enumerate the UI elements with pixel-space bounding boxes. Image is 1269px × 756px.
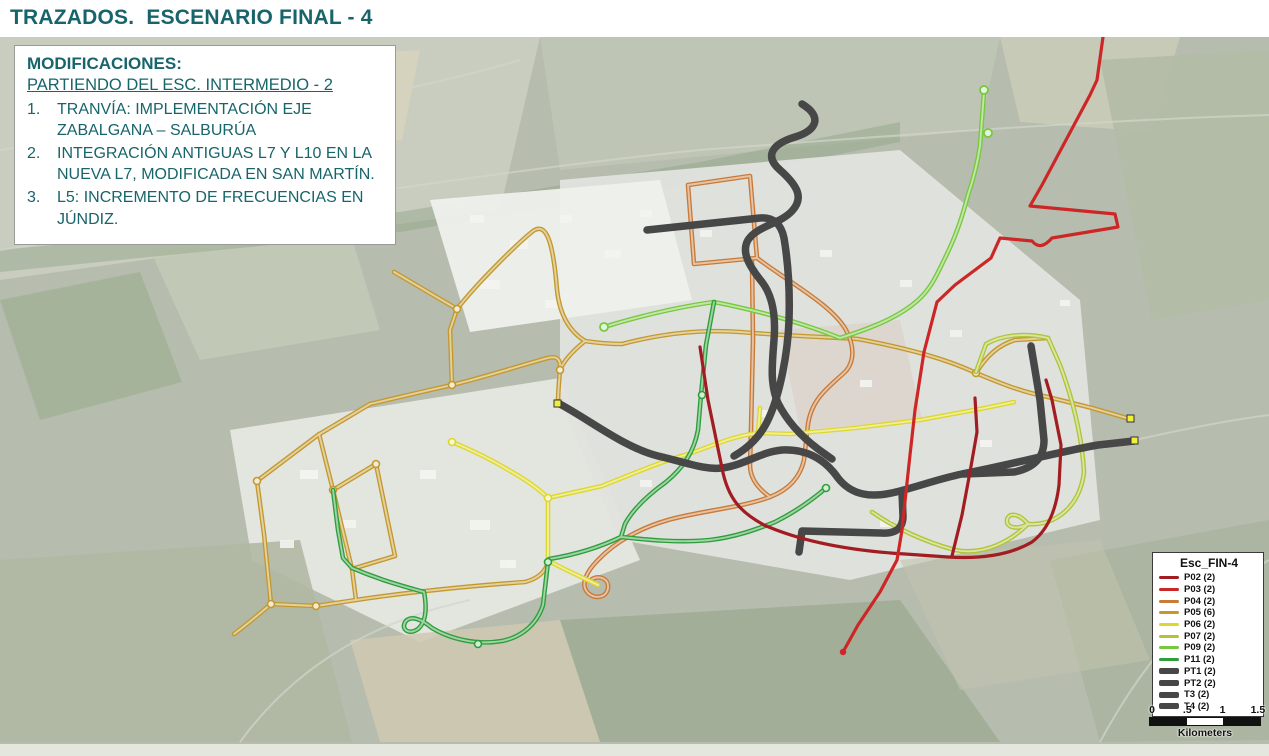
modification-text: L5: INCREMENTO DE FRECUENCIAS EN JÚNDIZ. bbox=[57, 187, 385, 229]
modification-item: 3.L5: INCREMENTO DE FRECUENCIAS EN JÚNDI… bbox=[27, 187, 385, 229]
legend-swatch bbox=[1159, 600, 1179, 603]
legend-item-p07: P07 (2) bbox=[1159, 630, 1259, 642]
legend-swatch bbox=[1159, 576, 1179, 579]
scale-segment bbox=[1150, 718, 1187, 725]
scale-segment bbox=[1223, 718, 1260, 725]
scale-segment bbox=[1187, 718, 1224, 725]
legend-swatch bbox=[1159, 588, 1179, 591]
legend-item-p06: P06 (2) bbox=[1159, 619, 1259, 631]
scale-labels: 0.511.5 bbox=[1146, 704, 1264, 716]
legend-label: P09 (2) bbox=[1184, 642, 1215, 653]
legend-label: P02 (2) bbox=[1184, 572, 1215, 583]
scale-label: 1.5 bbox=[1251, 704, 1266, 716]
legend-swatch bbox=[1159, 668, 1179, 674]
legend-item-p03: P03 (2) bbox=[1159, 584, 1259, 596]
page-title: TRAZADOS. ESCENARIO FINAL - 4 bbox=[10, 6, 373, 30]
legend-label: PT2 (2) bbox=[1184, 678, 1216, 689]
scale-label: .5 bbox=[1183, 704, 1192, 716]
legend-swatch bbox=[1159, 646, 1179, 649]
map-legend: Esc_FIN-4 P02 (2)P03 (2)P04 (2)P05 (6)P0… bbox=[1152, 552, 1264, 717]
legend-swatch bbox=[1159, 635, 1179, 638]
modification-text: INTEGRACIÓN ANTIGUAS L7 Y L10 EN LA NUEV… bbox=[57, 143, 385, 185]
legend-swatch bbox=[1159, 692, 1179, 698]
legend-item-p05: P05 (6) bbox=[1159, 607, 1259, 619]
modification-number: 3. bbox=[27, 187, 57, 229]
slide: TRAZADOS. ESCENARIO FINAL - 4 MODIFICACI… bbox=[0, 0, 1269, 756]
legend-items: P02 (2)P03 (2)P04 (2)P05 (6)P06 (2)P07 (… bbox=[1159, 572, 1259, 712]
legend-swatch bbox=[1159, 680, 1179, 686]
legend-label: T3 (2) bbox=[1184, 689, 1209, 700]
legend-item-pt1: PT1 (2) bbox=[1159, 666, 1259, 678]
modification-text: TRANVÍA: IMPLEMENTACIÓN EJE ZABALGANA – … bbox=[57, 99, 385, 141]
modifications-heading: MODIFICACIONES: bbox=[27, 54, 385, 74]
scale-unit: Kilometers bbox=[1146, 727, 1264, 739]
legend-item-p02: P02 (2) bbox=[1159, 572, 1259, 584]
legend-label: P07 (2) bbox=[1184, 631, 1215, 642]
legend-item-p11: P11 (2) bbox=[1159, 654, 1259, 666]
scale-bar-graphic bbox=[1149, 717, 1261, 726]
scale-label: 0 bbox=[1149, 704, 1155, 716]
legend-label: P03 (2) bbox=[1184, 584, 1215, 595]
modifications-box: MODIFICACIONES: PARTIENDO DEL ESC. INTER… bbox=[14, 45, 396, 245]
legend-item-t3: T3 (2) bbox=[1159, 689, 1259, 701]
legend-item-p04: P04 (2) bbox=[1159, 595, 1259, 607]
legend-label: PT1 (2) bbox=[1184, 666, 1216, 677]
modifications-subheading: PARTIENDO DEL ESC. INTERMEDIO - 2 bbox=[27, 76, 385, 95]
legend-label: P05 (6) bbox=[1184, 607, 1215, 618]
modification-item: 2.INTEGRACIÓN ANTIGUAS L7 Y L10 EN LA NU… bbox=[27, 143, 385, 185]
legend-title: Esc_FIN-4 bbox=[1159, 556, 1259, 570]
legend-item-pt2: PT2 (2) bbox=[1159, 677, 1259, 689]
legend-swatch bbox=[1159, 658, 1179, 661]
modifications-list: 1.TRANVÍA: IMPLEMENTACIÓN EJE ZABALGANA … bbox=[27, 99, 385, 230]
legend-label: P04 (2) bbox=[1184, 596, 1215, 607]
modification-number: 1. bbox=[27, 99, 57, 141]
legend-swatch bbox=[1159, 623, 1179, 626]
legend-label: P11 (2) bbox=[1184, 654, 1215, 665]
legend-item-p09: P09 (2) bbox=[1159, 642, 1259, 654]
modification-number: 2. bbox=[27, 143, 57, 185]
header: TRAZADOS. ESCENARIO FINAL - 4 bbox=[0, 0, 1269, 37]
scale-label: 1 bbox=[1220, 704, 1226, 716]
legend-label: P06 (2) bbox=[1184, 619, 1215, 630]
legend-swatch bbox=[1159, 611, 1179, 614]
scale-bar: 0.511.5 Kilometers bbox=[1146, 704, 1264, 739]
modification-item: 1.TRANVÍA: IMPLEMENTACIÓN EJE ZABALGANA … bbox=[27, 99, 385, 141]
